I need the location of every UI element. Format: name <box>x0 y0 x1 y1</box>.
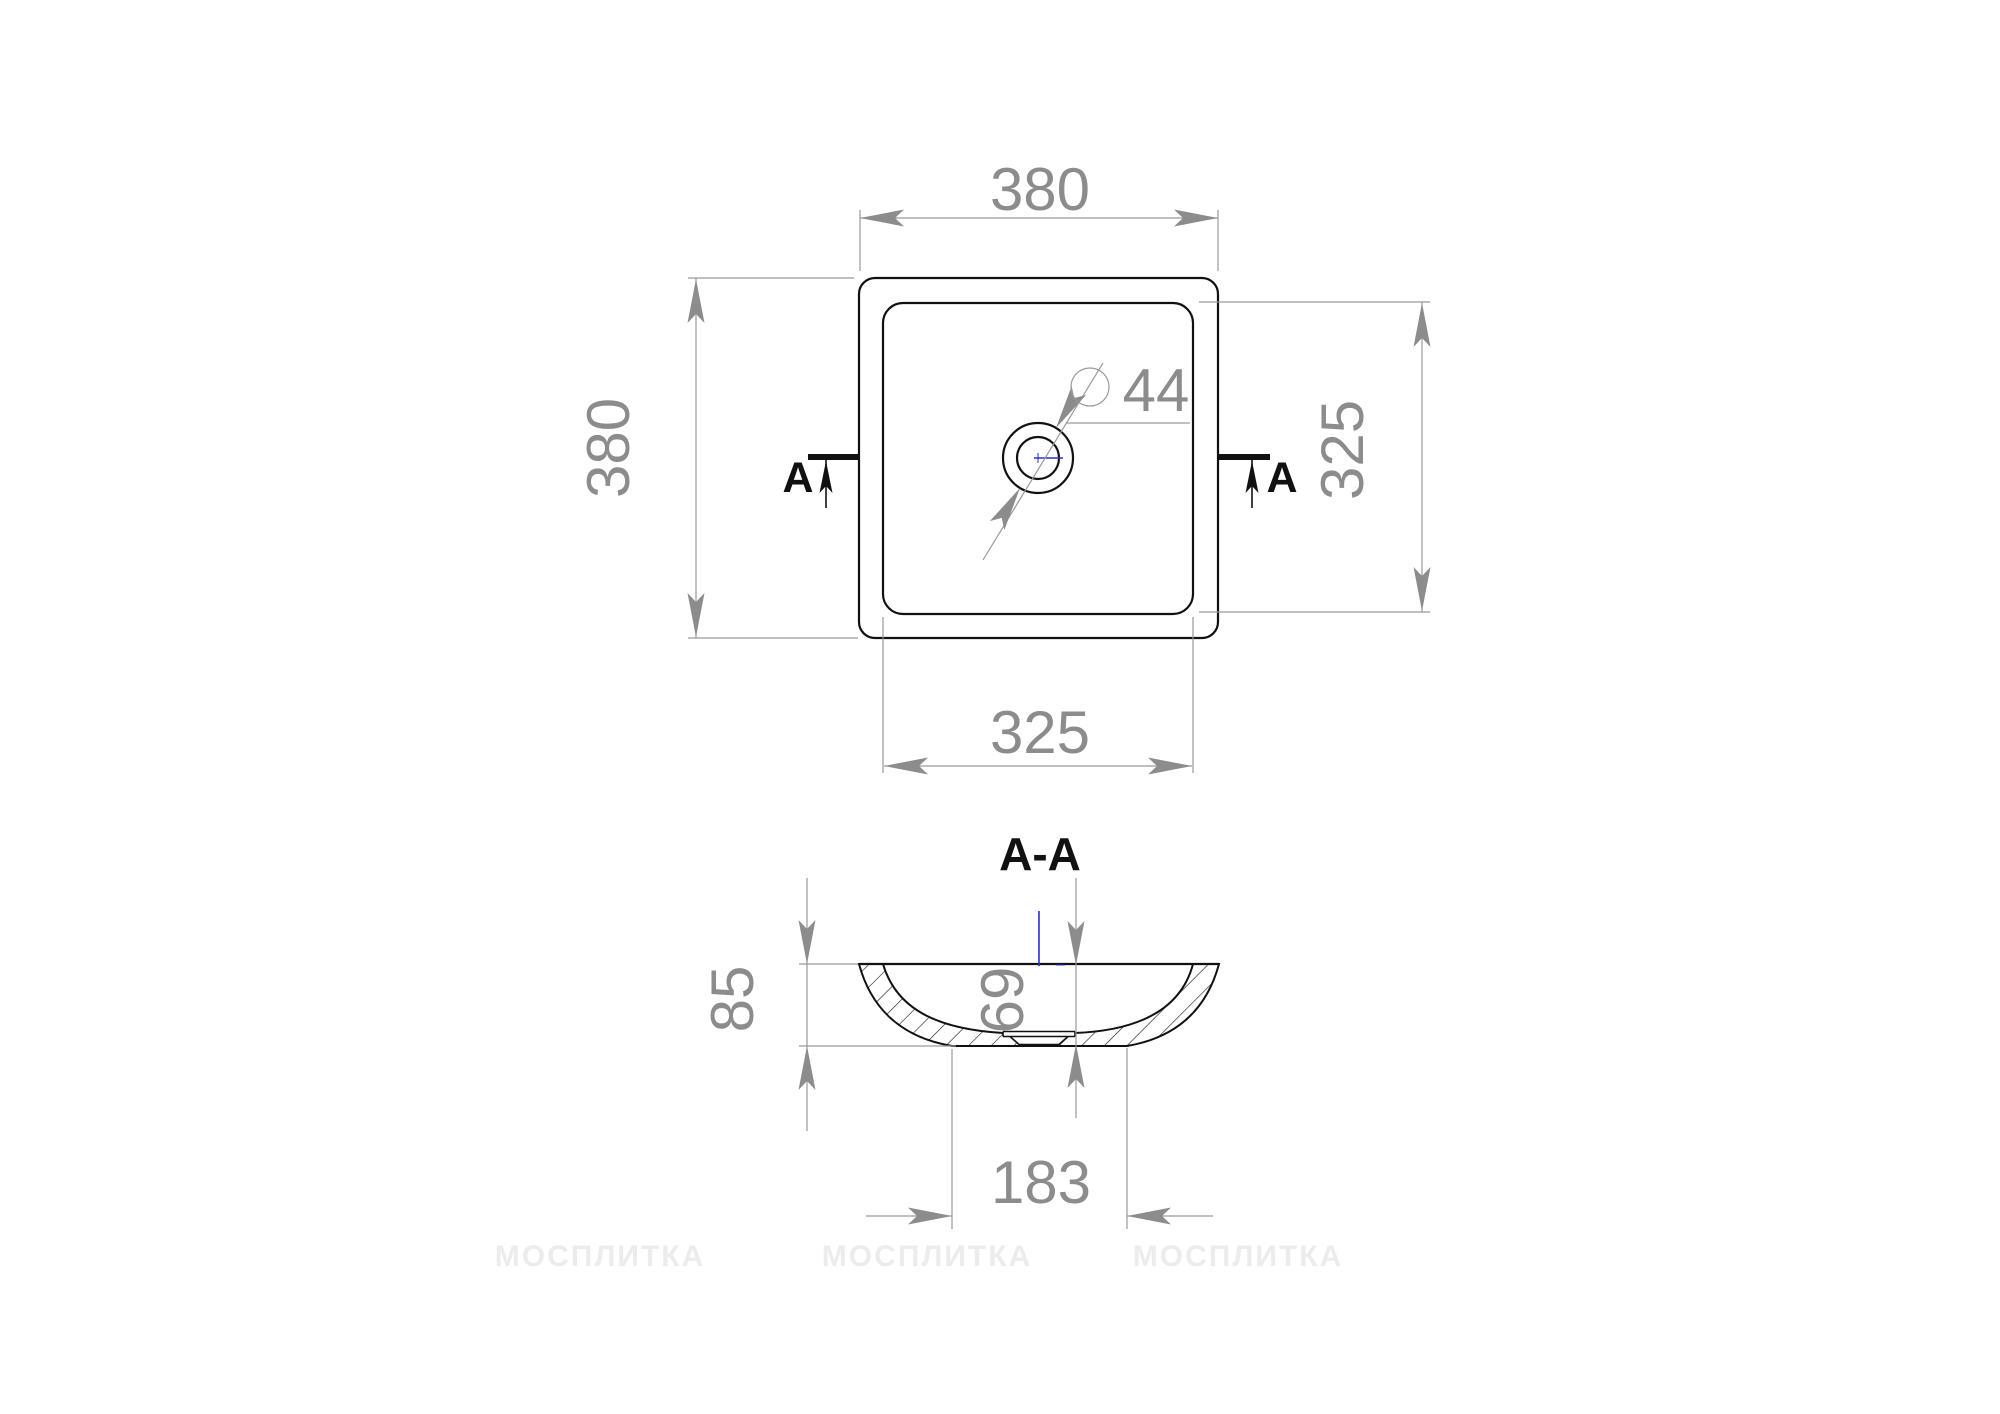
technical-drawing-page: МОСПЛИТКА МОСПЛИТКА МОСПЛИТКА 380 <box>0 0 2000 1414</box>
arrowhead <box>1049 386 1086 432</box>
watermark-text: МОСПЛИТКА <box>495 1240 705 1273</box>
dim-label-section-height: 85 <box>699 966 766 1033</box>
drawing-canvas: МОСПЛИТКА МОСПЛИТКА МОСПЛИТКА 380 <box>0 0 2000 1414</box>
dim-inner-width: 325 <box>883 617 1193 775</box>
watermark-text: МОСПЛИТКА <box>822 1240 1032 1273</box>
dim-label-overall-height: 380 <box>575 398 642 498</box>
dim-label-inner-width: 325 <box>990 699 1090 766</box>
dim-overall-width: 380 <box>860 156 1218 271</box>
dim-label-inner-height: 325 <box>1309 400 1376 500</box>
arrowhead <box>990 484 1027 530</box>
watermark-row: МОСПЛИТКА МОСПЛИТКА МОСПЛИТКА <box>495 1240 1343 1273</box>
dim-label-drain-diameter: 44 <box>1123 357 1190 424</box>
dim-section-height: 85 <box>699 878 956 1131</box>
dim-section-depth: 69 <box>969 878 1085 1118</box>
section-title: A-A <box>999 828 1081 880</box>
section-centerline <box>1039 911 1065 966</box>
diameter-symbol-icon <box>1071 368 1109 406</box>
dim-label-section-depth: 69 <box>969 967 1036 1034</box>
dim-label-overall-width: 380 <box>990 156 1090 223</box>
watermark-text: МОСПЛИТКА <box>1133 1240 1343 1273</box>
dim-label-base-width: 183 <box>991 1149 1091 1216</box>
section-label-left: A <box>782 454 813 502</box>
leader-line <box>983 363 1103 560</box>
top-view: 380 380 325 325 <box>575 156 1431 775</box>
section-view: A-A 85 69 <box>699 828 1219 1229</box>
section-label-right: A <box>1266 454 1297 502</box>
dim-base-width: 183 <box>866 1048 1213 1229</box>
dim-drain-diameter: 44 <box>983 357 1190 560</box>
drain <box>1003 423 1073 493</box>
